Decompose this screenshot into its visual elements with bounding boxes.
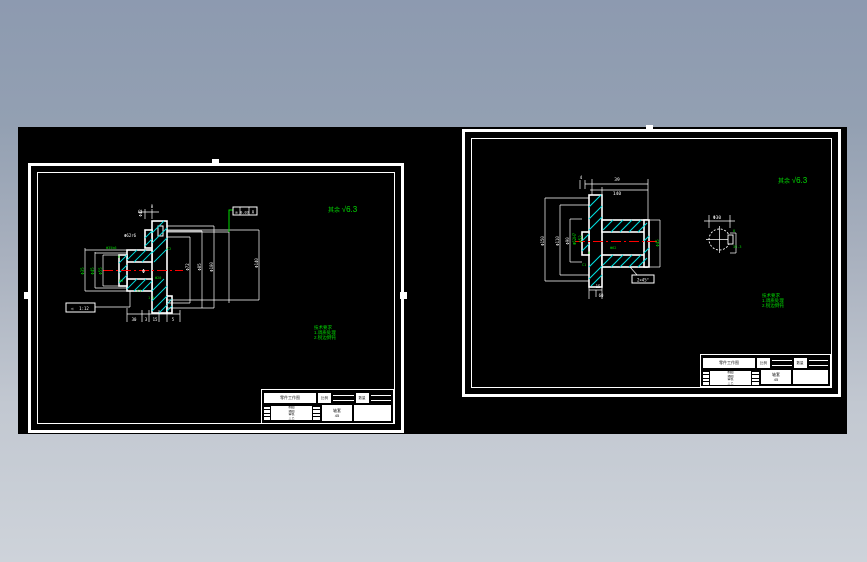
dim-text: 39 <box>614 177 620 183</box>
surface-note-prefix: 其余 <box>328 208 340 214</box>
empty-cell <box>354 405 391 421</box>
grip-top[interactable] <box>212 159 219 166</box>
dim-text: 6 <box>588 251 590 255</box>
dim-text: 8 <box>151 204 154 209</box>
roughness-symbol: √6.3 <box>792 176 808 185</box>
dim-text: 15 <box>153 317 158 322</box>
dim-text: 5 <box>172 317 175 322</box>
dim-text: Φ52 <box>578 235 583 243</box>
dim-text: Φ62r6 <box>124 233 137 238</box>
grip-left[interactable] <box>24 292 31 299</box>
scale-cell: 比例 <box>318 393 331 403</box>
surface-roughness-note: 其余 √6.3 <box>328 206 357 215</box>
tech-line: 2.锐边倒钝 <box>314 335 336 340</box>
dim-text: 4 <box>580 175 583 180</box>
title-block-top-row: 零件工作图 比例 数量 <box>264 393 391 403</box>
taper-value: 1:12 <box>79 306 89 311</box>
drawing-name-cell: 零件工作图 <box>703 358 755 368</box>
signature-rows: 制图 描图 审核 工艺 <box>703 370 759 384</box>
tech-requirements: 技术要求 1.调质处理 2.锐边倒钝 <box>314 325 336 341</box>
dim-text: Φ20 <box>155 276 161 280</box>
dim-text: Φ35k6 <box>106 246 117 250</box>
dim-text: C1 <box>137 289 141 293</box>
title-block: 零件工作图 比例 数量 制图 描图 审核 工艺 轴套 45 <box>261 389 394 424</box>
grip-top[interactable] <box>646 125 653 132</box>
dim-text: 33.3 <box>733 245 741 249</box>
dim-text: Φ140 <box>254 258 259 268</box>
dim-text: Φ45 <box>90 267 95 275</box>
white-dim-texts: Φ42 8 Φ62r6 Φ Φ72 Φ85 Φ100 Φ140 30 3 15 … <box>124 204 259 322</box>
dim-text: Φ62 <box>610 246 616 250</box>
part-name-cell: 轴套 45 <box>322 405 352 421</box>
grip-right[interactable] <box>400 292 407 299</box>
surface-note-prefix: 其余 <box>778 179 790 185</box>
chamfer-value: 2×45° <box>637 277 649 282</box>
scale-cell: 比例 <box>757 358 770 368</box>
white-dim-texts: 39 140 4 Φ150 Φ110 Φ90 15 60 Φ30 <box>540 175 721 298</box>
cad-workspace: { "notes": { "surface_prefix": "其余", "su… <box>0 0 867 562</box>
gdt-frame: ◎ 0.03 A <box>233 207 257 215</box>
dim-text: Φ62H7 <box>572 232 577 245</box>
dim-text: Φ30 <box>713 215 721 221</box>
dim-text: Φ150 <box>540 236 545 246</box>
dim-text: Φ <box>142 269 145 275</box>
divider-lines <box>772 358 792 368</box>
part-material: 45 <box>322 413 352 418</box>
divider-lines <box>371 393 392 403</box>
title-block-main: 制图 描图 审核 工艺 轴套 45 <box>264 405 391 421</box>
title-block-top-row: 零件工作图 比例 数量 <box>703 358 828 368</box>
dim-text: 1.5 <box>148 296 154 300</box>
dim-text: Φ100 <box>209 262 214 272</box>
roughness-symbol: √6.3 <box>342 205 358 214</box>
chamfer-frame: 2×45° <box>632 275 654 283</box>
dim-text: Φ35 <box>80 267 85 275</box>
dim-text: R3 <box>119 279 123 283</box>
tech-requirements: 技术要求 1.调质处理 2.锐边倒钝 <box>762 293 784 309</box>
dim-text: Φ110 <box>555 236 560 246</box>
taper-frame: ◁ 1:12 <box>66 303 95 312</box>
part-material: 45 <box>761 377 791 382</box>
dim-text: 3 <box>145 317 148 322</box>
gdt-tolerance: 0.03 <box>240 211 248 215</box>
title-block-main: 制图 描图 审核 工艺 轴套 45 <box>703 370 828 384</box>
sig-row: 工艺 <box>710 382 751 386</box>
signature-rows: 制图 描图 审核 工艺 <box>264 405 320 421</box>
divider-lines <box>333 393 354 403</box>
dim-text: C2 <box>167 247 171 251</box>
qty-cell: 数量 <box>356 393 369 403</box>
dim-text: 60 <box>599 293 604 298</box>
dim-text: Φ42 <box>138 209 143 217</box>
drawing-canvas[interactable]: ◎ 0.03 A ◁ 1:12 Φ42 8 Φ62r6 Φ Φ72 Φ85 Φ1… <box>18 127 847 434</box>
divider-lines <box>809 358 829 368</box>
sheet-left[interactable]: ◎ 0.03 A ◁ 1:12 Φ42 8 Φ62r6 Φ Φ72 Φ85 Φ1… <box>28 163 404 433</box>
dim-text: 140 <box>613 191 621 197</box>
title-block: 零件工作图 比例 数量 制图 描图 审核 工艺 轴套 45 <box>700 354 831 387</box>
qty-cell: 数量 <box>794 358 807 368</box>
dim-text: 15 <box>596 284 601 289</box>
dim-text: Φ45 <box>655 239 660 247</box>
dim-text: 8 <box>733 229 735 233</box>
drawing-name-cell: 零件工作图 <box>264 393 316 403</box>
dim-text: C1 <box>582 263 586 267</box>
dim-text: Φ72 <box>185 263 190 271</box>
surface-roughness-note: 其余 √6.3 <box>778 177 807 186</box>
dim-text: Φ90 <box>565 237 570 245</box>
sig-row: 工艺 <box>271 417 312 421</box>
dim-text: Φ85 <box>197 263 202 271</box>
empty-cell <box>793 370 828 384</box>
dim-text: Φ55 <box>98 267 103 275</box>
dim-text: 6 <box>118 255 120 259</box>
sheet-right[interactable]: 2×45° 39 140 4 Φ150 Φ110 Φ90 15 60 Φ30 Φ… <box>462 129 841 397</box>
dim-text: 30 <box>132 317 137 322</box>
tech-line: 2.锐边倒钝 <box>762 303 784 308</box>
part-name-cell: 轴套 45 <box>761 370 791 384</box>
